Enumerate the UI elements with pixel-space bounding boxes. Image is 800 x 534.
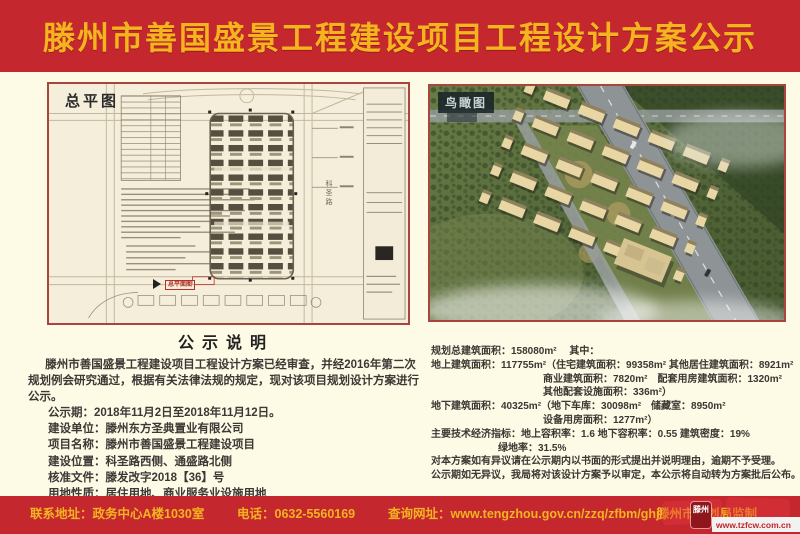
- north-arrow-icon: [153, 279, 161, 289]
- watermark-url: www.tzfcw.com.cn: [712, 520, 791, 530]
- notice-paragraph: 滕州市善国盛景工程建设项目工程设计方案已经审查，并经2016年第二次规划例会研究…: [28, 357, 424, 405]
- notice-poster: 滕州市善国盛景工程建设项目工程设计方案公示: [0, 0, 800, 534]
- metric-green-ratio: 绿地率：31.5%: [431, 442, 796, 456]
- notice-block: 公示说明 滕州市善国盛景工程建设项目工程设计方案已经审查，并经2016年第二次规…: [28, 329, 424, 502]
- site-plan-panel: 总平图 总平面图 科圣路: [47, 82, 410, 325]
- site-plan-stamp: 总平面图: [165, 280, 195, 290]
- metric-indicators: 主要技术经济指标：地上容积率：1.6 地下容积率：0.55 建筑密度：19%: [431, 428, 796, 442]
- metric-objection-note-1: 对本方案如有异议请在公示期内以书面的形式提出并说明理由，逾期不予受理。: [431, 455, 796, 469]
- aerial-view-panel: 鸟瞰图: [428, 84, 786, 322]
- watermark-glyph-blob: [726, 497, 791, 519]
- footer-website-url: 查询网址：www.tengzhou.gov.cn/zzq/zfbm/ghj/: [388, 496, 663, 534]
- poster-title: 滕州市善国盛景工程建设项目工程设计方案公示: [43, 13, 757, 59]
- notice-line-location: 建设位置：科圣路西侧、通盛路北侧: [28, 454, 424, 470]
- metrics-block: 规划总建筑面积：158080m² 其中： 地上建筑面积：117755m²（住宅建…: [431, 345, 796, 483]
- notice-line-approval: 核准文件：滕发改字2018【36】号: [28, 470, 424, 486]
- road-name-label: 科圣路: [323, 180, 333, 207]
- notice-title: 公示说明: [28, 329, 424, 353]
- notice-line-period: 公示期：2018年11月2日至2018年11月12日。: [28, 405, 424, 421]
- aerial-view-sub-chip: [447, 113, 477, 122]
- metric-total-area: 规划总建筑面积：158080m² 其中：: [431, 345, 796, 359]
- footer-contact-address: 联系地址：政务中心A楼1030室: [30, 496, 204, 534]
- notice-line-builder: 建设单位：滕州东方圣典置业有限公司: [28, 421, 424, 437]
- header-band: 滕州市善国盛景工程建设项目工程设计方案公示: [0, 0, 800, 72]
- aerial-rendering: [430, 86, 784, 320]
- site-plan-label: 总平图: [65, 90, 119, 111]
- site-plan-drawing: [49, 84, 408, 323]
- footer-phone: 电话：0632-5560169: [237, 496, 355, 534]
- metric-objection-note-2: 公示期如无异议，我局将对该设计方案予以审定，本公示将自动转为方案批后公布。: [431, 469, 796, 483]
- watermark-url-strip: www.tzfcw.com.cn: [712, 517, 800, 532]
- metric-above-ground: 地上建筑面积：117755m²（住宅建筑面积：99358m² 其他居住建筑面积：…: [431, 359, 796, 373]
- notice-line-project: 项目名称：滕州市善国盛景工程建设项目: [28, 437, 424, 453]
- metric-underground: 地下建筑面积：40325m²（地下车库：30098m² 储藏室：8950m²: [431, 400, 796, 414]
- metric-equipment-room: 设备用房面积：1277m²）: [431, 414, 796, 428]
- watermark-logo: 滕州: [691, 502, 711, 528]
- metric-commercial: 商业建筑面积：7820m² 配套用房建筑面积：1320m²: [431, 373, 796, 387]
- aerial-view-label: 鸟瞰图: [438, 92, 494, 113]
- metric-other-facilities: 其他配套设施面积：336m²）: [431, 386, 796, 400]
